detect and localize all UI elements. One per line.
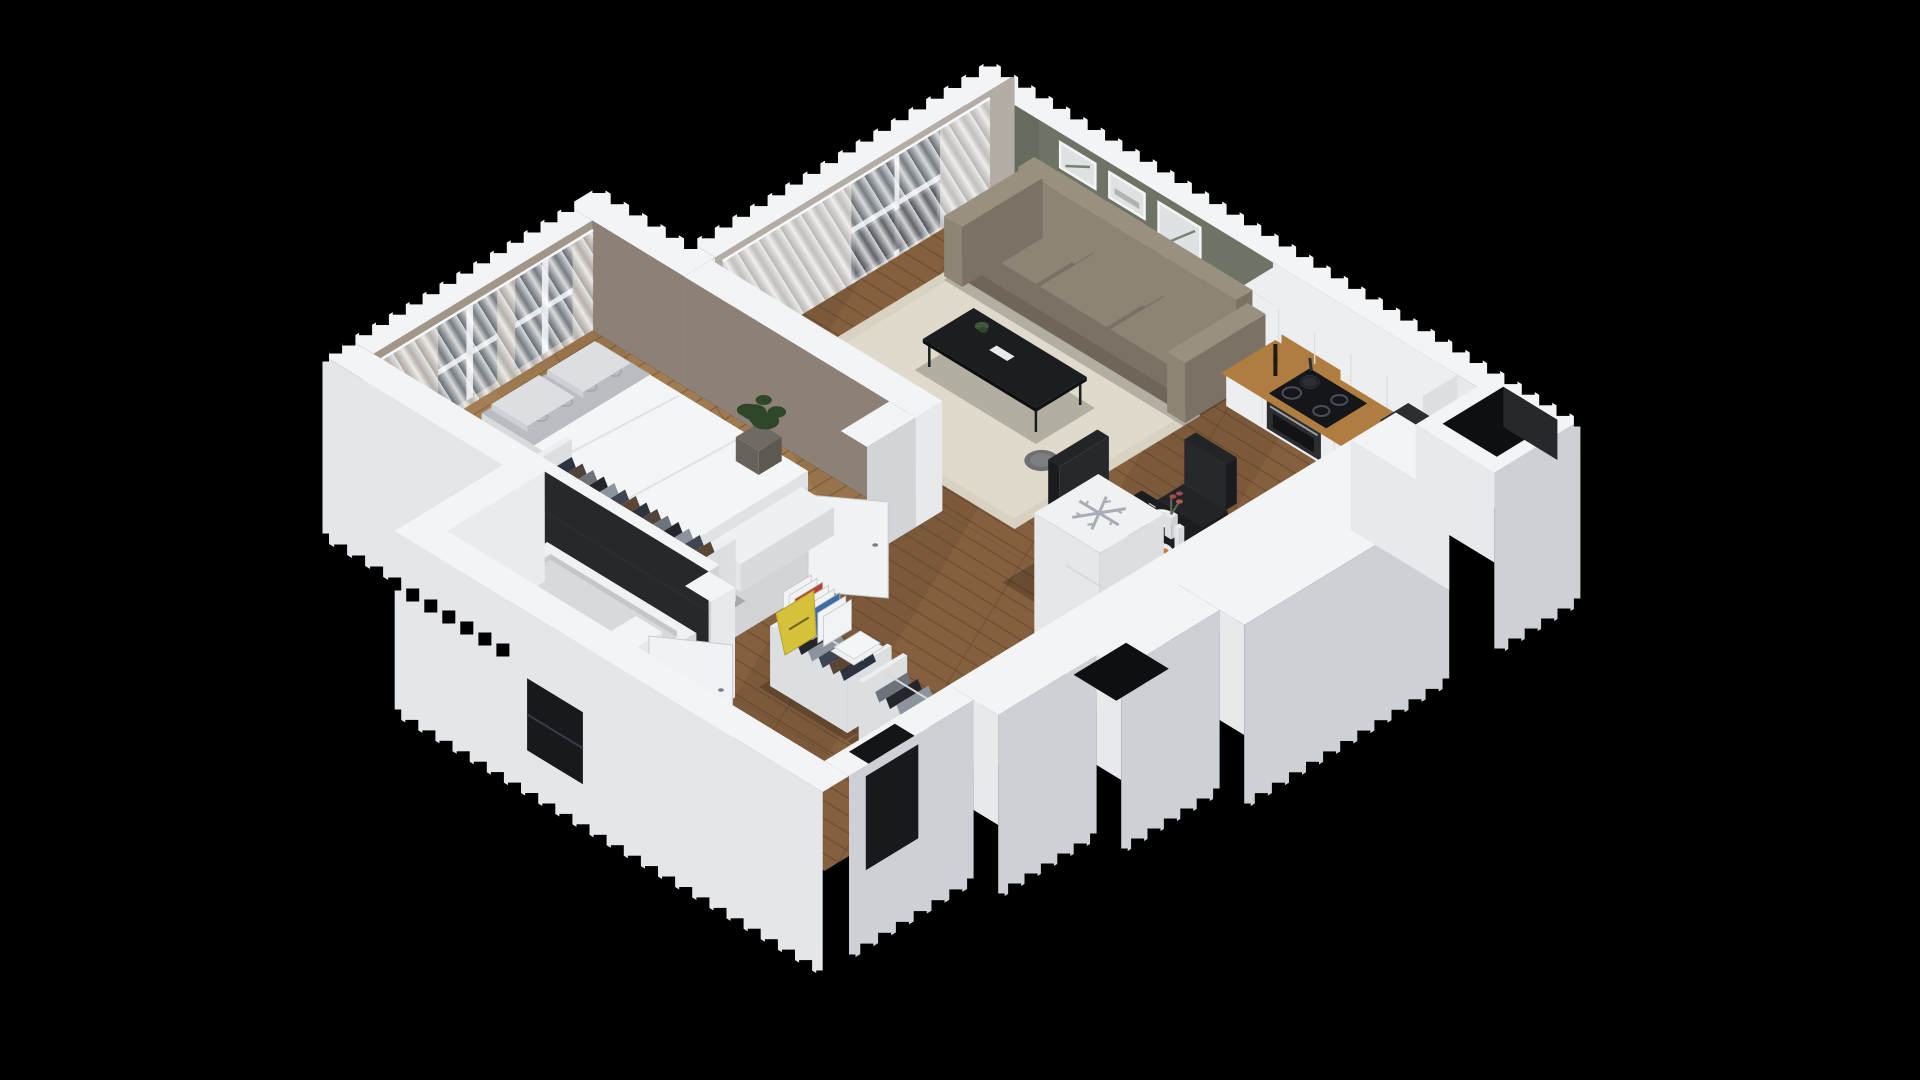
render-canvas bbox=[0, 0, 1920, 1080]
floor-plan-scene bbox=[0, 0, 1920, 1080]
